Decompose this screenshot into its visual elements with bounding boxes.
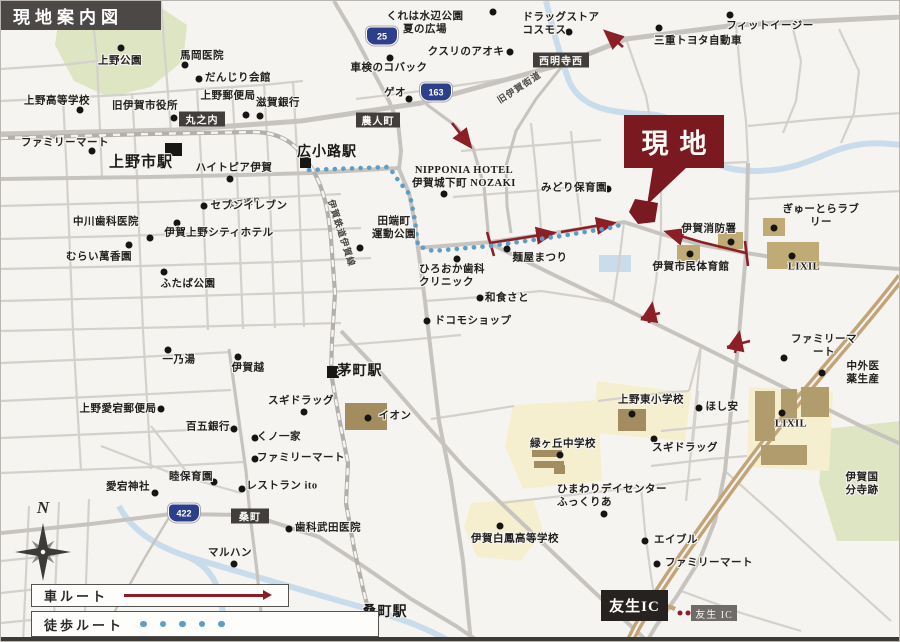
poi-dot (126, 242, 133, 249)
poi-dot (454, 256, 461, 263)
map-title: 現地案内図 (1, 1, 161, 30)
site-callout: 現地 (624, 115, 724, 168)
site-marker (629, 167, 687, 224)
campus-areas (464, 381, 833, 561)
poi-dot (605, 186, 612, 193)
poi-dot (201, 203, 208, 210)
car-route-arrow-icon (124, 594, 264, 597)
pond (599, 255, 631, 272)
poi-dot (490, 9, 497, 16)
poi-dot (728, 239, 735, 246)
road-sign-box: 桑町 (231, 509, 269, 524)
poi-dot (182, 62, 189, 69)
site-guide-map: 上野公園馬岡医院だんじり会館上野郵便局滋賀銀行上野高等学校旧伊賀市役所ファミリー… (0, 0, 900, 642)
legend-car-label: 車ルート (44, 586, 108, 605)
site-callout-text: 現地 (631, 122, 718, 161)
poi-dot (779, 410, 786, 417)
poi-dot (252, 456, 259, 463)
poi-dot (566, 29, 573, 36)
poi-dot (161, 269, 168, 276)
poi-dot (211, 479, 218, 486)
interchange-gate-sign: 友生 IC (691, 605, 737, 621)
station-label: 上野市駅 (109, 151, 173, 172)
poi-dot (152, 490, 159, 497)
poi-dot (642, 538, 649, 545)
poi-dot (441, 191, 448, 198)
poi-dot (158, 406, 165, 413)
poi-dot (252, 435, 259, 442)
poi-dot (727, 12, 734, 19)
poi-dot (557, 452, 564, 459)
legend-walk-route: 徒歩ルート (31, 611, 379, 637)
poi-dot (231, 426, 238, 433)
poi-dot (165, 347, 172, 354)
poi-dot (789, 253, 796, 260)
poi-dot (231, 561, 238, 568)
legend-walk-label: 徒歩ルート (44, 615, 124, 634)
poi-dot (301, 409, 308, 416)
poi-dot (771, 225, 778, 232)
station-label: 広小路駅 (297, 141, 357, 161)
poi-dot (365, 415, 372, 422)
station-label: 茅町駅 (338, 360, 383, 380)
poi-dot (387, 55, 394, 62)
road-sign-box: 農人町 (356, 113, 400, 128)
poi-dot (781, 355, 788, 362)
poi-dot (227, 176, 234, 183)
road-sign-box: 丸之内 (179, 112, 225, 127)
poi-dot (174, 220, 181, 227)
poi-dot (77, 107, 84, 114)
road-sign-box: 西明寺西 (533, 53, 589, 68)
poi-dot (687, 251, 694, 258)
poi-dot (406, 96, 413, 103)
interchange-sign: 友生IC (601, 590, 668, 621)
poi-dot (629, 411, 636, 418)
map-bottom-border (1, 637, 900, 642)
poi-dot (118, 45, 125, 52)
poi-dot (696, 405, 703, 412)
route-shield: 163 (420, 83, 452, 102)
poi-dot (497, 523, 504, 530)
poi-dot (504, 246, 511, 253)
map-title-text: 現地案内図 (13, 3, 123, 28)
poi-dot (477, 295, 484, 302)
route-shield: 25 (366, 27, 398, 46)
poi-dot (171, 115, 178, 122)
poi-dot (147, 235, 154, 242)
poi-dot (286, 526, 293, 533)
poi-dot (507, 49, 514, 56)
poi-dot (651, 436, 658, 443)
poi-dot (656, 25, 663, 32)
poi-dot (819, 370, 826, 377)
poi-dot (654, 561, 661, 568)
poi-dot (257, 113, 264, 120)
walk-route-dots-icon (140, 621, 225, 628)
legend-car-route: 車ルート (31, 584, 289, 607)
poi-dot (239, 486, 246, 493)
poi-dot (601, 511, 608, 518)
poi-dot (424, 318, 431, 325)
route-shield: 422 (168, 504, 200, 523)
compass-north-label: N (37, 498, 49, 518)
poi-dot (357, 245, 364, 252)
poi-dot (235, 354, 242, 361)
poi-dot (243, 112, 250, 119)
poi-dot (89, 148, 96, 155)
poi-dot (196, 76, 203, 83)
